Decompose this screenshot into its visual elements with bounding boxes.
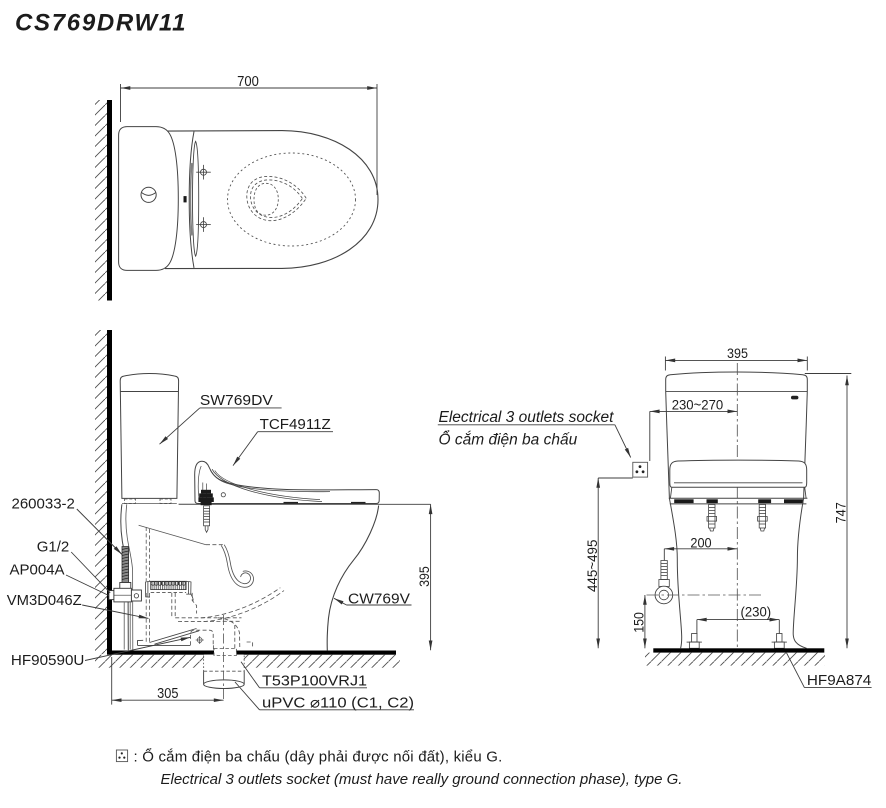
- svg-text:395: 395: [727, 346, 748, 362]
- svg-text:AP004A: AP004A: [10, 562, 65, 579]
- svg-text:230~270: 230~270: [672, 397, 724, 412]
- svg-text:260033-2: 260033-2: [12, 496, 75, 513]
- svg-text:395: 395: [417, 566, 433, 587]
- svg-text:Electrical 3 outlets socket (m: Electrical 3 outlets socket (must have r…: [161, 771, 683, 788]
- svg-text:: Ổ cắm điện ba chấu (dây phải: : Ổ cắm điện ba chấu (dây phải được nối …: [134, 748, 503, 766]
- svg-text:305: 305: [157, 686, 178, 702]
- svg-text:Ổ cắm điện ba chấu: Ổ cắm điện ba chấu: [439, 431, 578, 449]
- svg-text:SW769DV: SW769DV: [200, 392, 273, 409]
- svg-text:Electrical 3 outlets socket: Electrical 3 outlets socket: [439, 409, 615, 426]
- svg-text:CS769DRW11: CS769DRW11: [15, 10, 187, 37]
- svg-text:T53P100VRJ1: T53P100VRJ1: [262, 673, 367, 690]
- svg-text:uPVC ⌀110 (C1, C2): uPVC ⌀110 (C1, C2): [262, 694, 414, 711]
- svg-text:(230): (230): [740, 603, 771, 619]
- svg-text:TCF4911Z: TCF4911Z: [260, 416, 331, 433]
- svg-text:747: 747: [834, 502, 850, 523]
- svg-text:VM3D046Z: VM3D046Z: [7, 592, 82, 609]
- svg-text:G1/2: G1/2: [37, 539, 70, 556]
- svg-text:150: 150: [631, 612, 647, 633]
- svg-text:HF90590U: HF90590U: [11, 652, 85, 669]
- svg-text:445~495: 445~495: [584, 539, 600, 592]
- svg-text:200: 200: [690, 534, 711, 550]
- svg-text:700: 700: [237, 74, 259, 90]
- svg-text:HF9A874: HF9A874: [807, 672, 871, 689]
